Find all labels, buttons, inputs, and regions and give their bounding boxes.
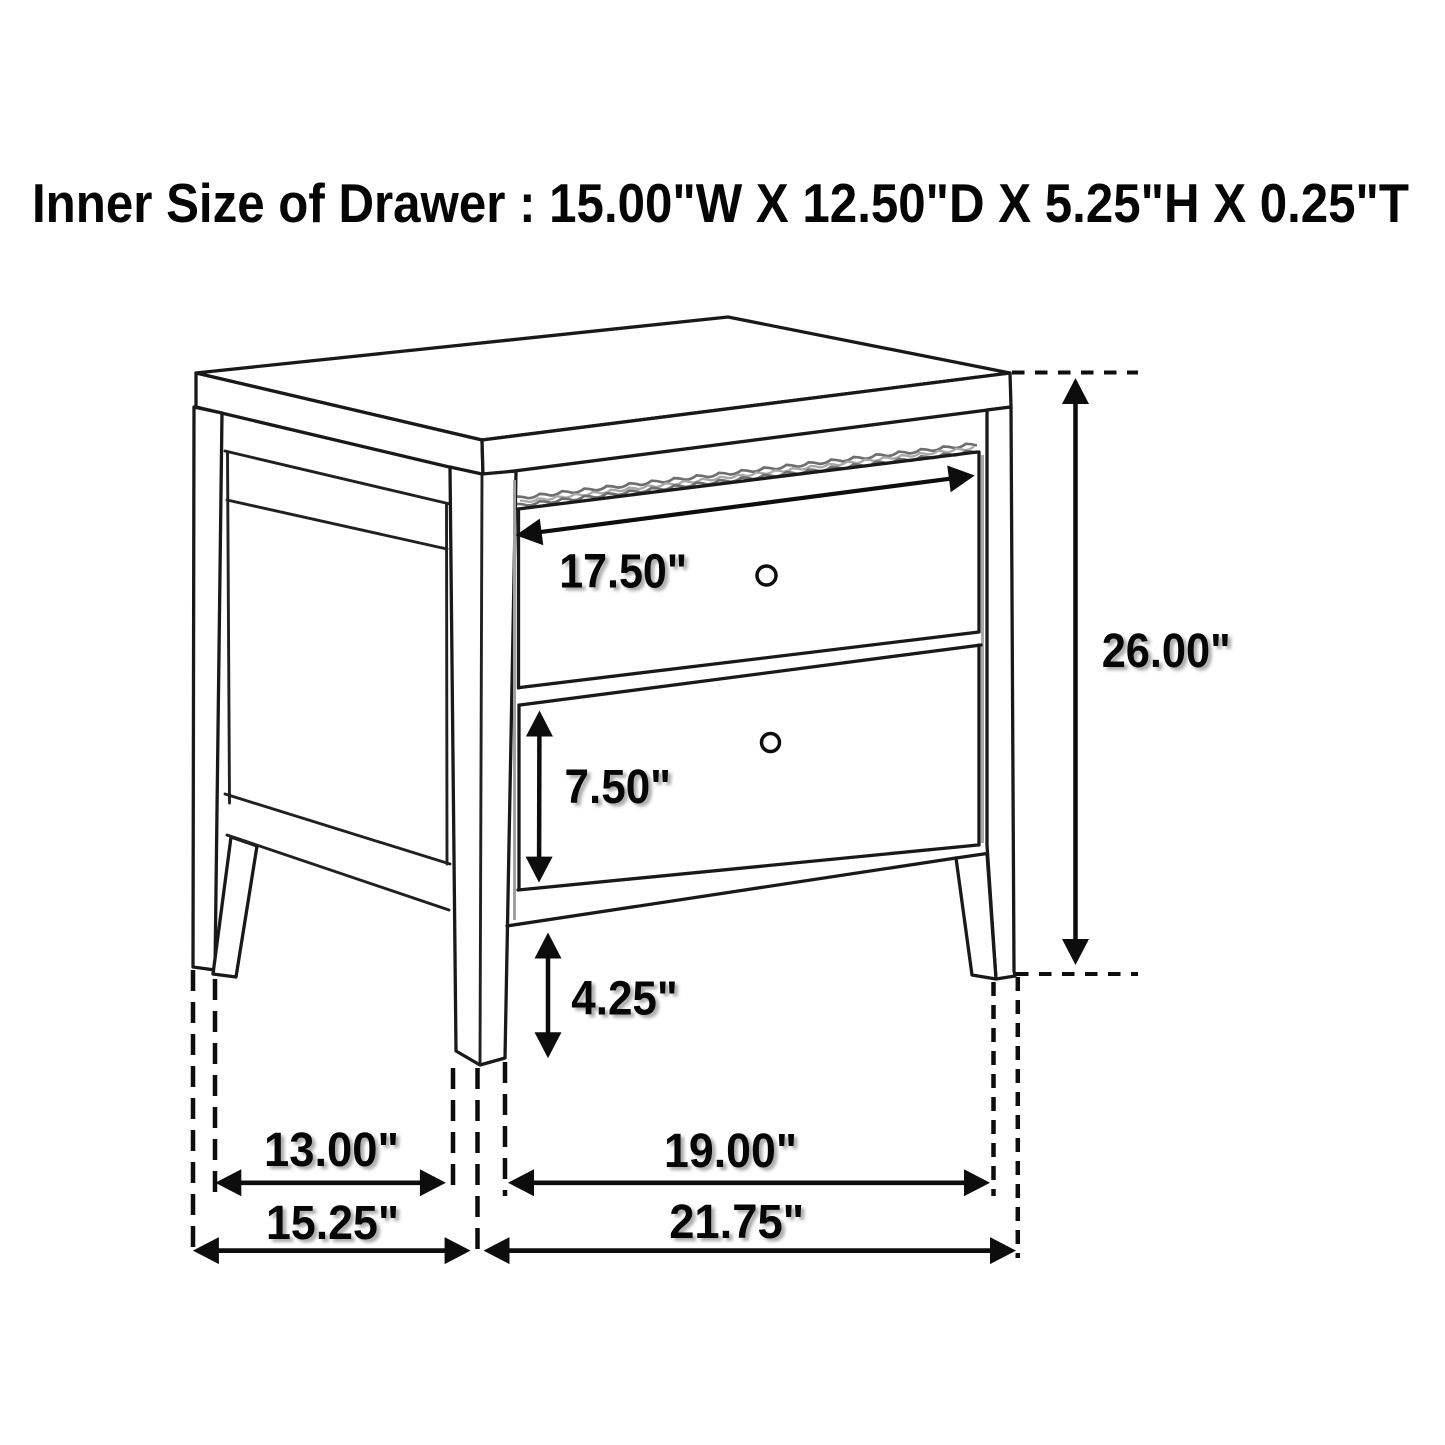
svg-text:Inner Size of Drawer : 15.00"W: Inner Size of Drawer : 15.00"W X 12.50"D… bbox=[32, 172, 1409, 234]
svg-text:19.00": 19.00" bbox=[664, 1125, 797, 1178]
svg-text:17.50": 17.50" bbox=[559, 545, 687, 598]
svg-text:4.25": 4.25" bbox=[571, 973, 678, 1026]
svg-text:7.50": 7.50" bbox=[565, 761, 672, 814]
svg-text:21.75": 21.75" bbox=[669, 1196, 804, 1249]
svg-text:26.00": 26.00" bbox=[1102, 625, 1231, 678]
svg-text:13.00": 13.00" bbox=[264, 1124, 399, 1177]
svg-text:15.25": 15.25" bbox=[266, 1197, 399, 1250]
